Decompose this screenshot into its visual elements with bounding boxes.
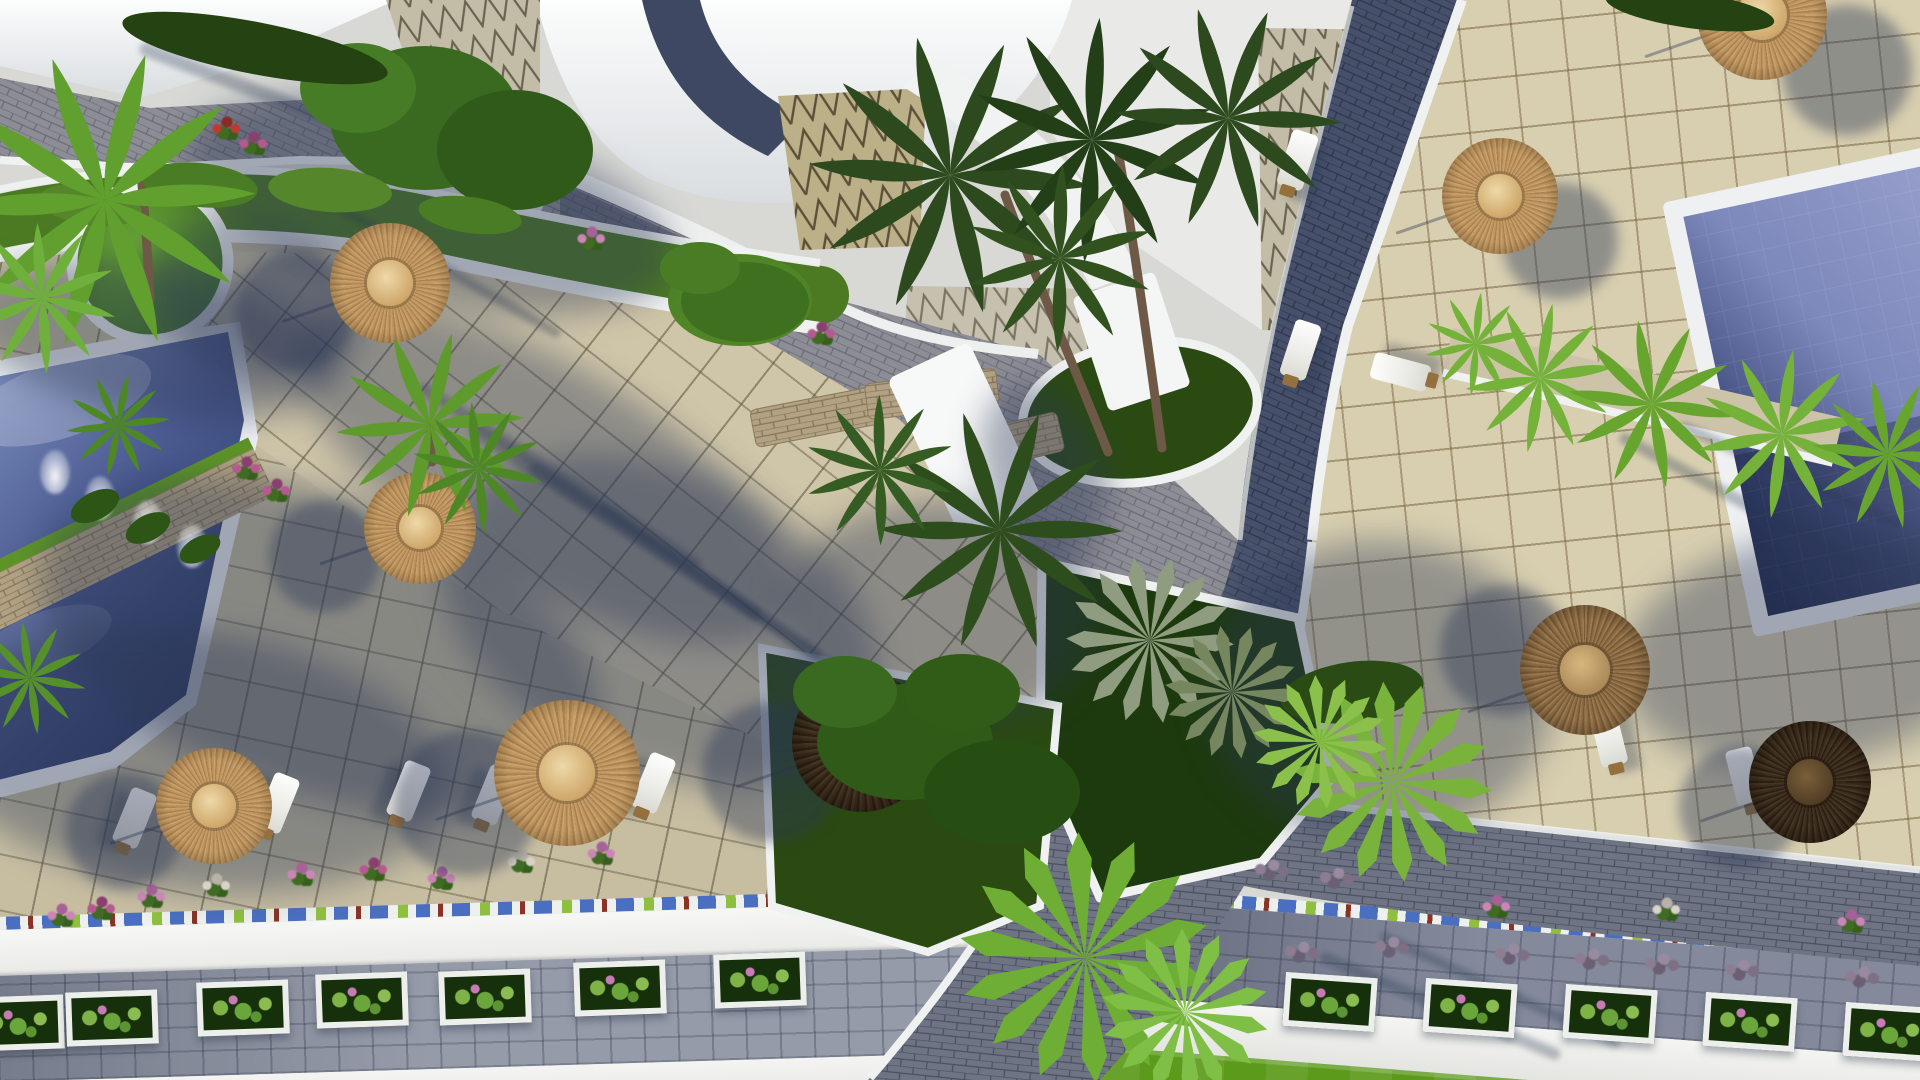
white-ribbon-wall bbox=[902, 58, 1138, 290]
bush bbox=[121, 506, 176, 551]
feather-palm bbox=[1553, 306, 1751, 502]
flower-tuft bbox=[1830, 903, 1870, 933]
shaded-path bbox=[1238, 0, 1462, 540]
fan-palm bbox=[1234, 656, 1406, 828]
navy-curved-band bbox=[642, 0, 806, 156]
triangle-mosaic-patch bbox=[902, 286, 1160, 366]
white-pergola-slab bbox=[1072, 271, 1191, 412]
parasol-shadow bbox=[1782, 5, 1912, 135]
flower-tuft bbox=[1645, 891, 1685, 921]
feather-palm bbox=[752, 0, 1147, 373]
flower-tuft bbox=[420, 860, 460, 890]
aerial-resort-render: Bird's-eye 3D rendering of a resort comp… bbox=[0, 0, 1920, 1080]
dry-scrub-tuft bbox=[1311, 862, 1359, 890]
bush bbox=[437, 90, 593, 210]
palm-trunk-shadow bbox=[138, 40, 353, 133]
soft-shadow bbox=[248, 240, 843, 711]
flower-tuft bbox=[130, 878, 170, 908]
straw-parasol bbox=[364, 472, 476, 584]
straw-parasol bbox=[330, 223, 450, 343]
soft-shadow bbox=[1205, 540, 1555, 840]
soft-shadow bbox=[1603, 504, 1920, 796]
parasol-canopy bbox=[494, 700, 640, 846]
flower-tuft bbox=[232, 125, 272, 155]
parasol-cap bbox=[1478, 174, 1522, 218]
fountain-splash bbox=[40, 450, 70, 494]
pool-water bbox=[0, 332, 244, 782]
palm-island bbox=[1013, 326, 1266, 497]
fan-palm bbox=[1266, 656, 1518, 908]
palm-trunk-shadow bbox=[298, 181, 563, 340]
poolside-pebble-planter bbox=[1442, 328, 1843, 467]
sun-lounger bbox=[254, 771, 301, 835]
soft-shadow bbox=[0, 595, 466, 925]
bush bbox=[681, 262, 809, 342]
palm-trunk bbox=[1118, 150, 1162, 448]
triangle-mosaic-patch bbox=[386, 0, 540, 118]
curved-grass-band bbox=[0, 202, 820, 295]
parasol-canopy bbox=[1697, 0, 1827, 80]
bush bbox=[924, 740, 1080, 844]
bush bbox=[36, 178, 145, 232]
feather-palm bbox=[0, 193, 146, 402]
straw-parasol bbox=[1442, 138, 1558, 254]
parasol-cap bbox=[192, 784, 236, 828]
parasol-cap bbox=[1787, 759, 1833, 805]
pool-water bbox=[1683, 162, 1920, 616]
sun-lounger bbox=[630, 751, 677, 815]
parasol-pole-shadow bbox=[109, 806, 214, 845]
parasol-pole-shadow bbox=[1700, 782, 1811, 823]
sun-lounger bbox=[1724, 746, 1764, 809]
soft-shadow bbox=[780, 500, 1100, 730]
bush bbox=[793, 656, 897, 728]
feather-palm bbox=[0, 617, 90, 739]
central-building bbox=[386, 0, 1396, 366]
parasol-pole-shadow bbox=[1395, 196, 1500, 235]
fan-palm-island bbox=[1040, 562, 1332, 898]
parasol-pole-shadow bbox=[736, 742, 863, 788]
palm-trunk-shadow bbox=[1617, 431, 1863, 572]
feather-palm bbox=[852, 381, 1147, 679]
bush bbox=[904, 654, 1020, 730]
fountain-splash bbox=[177, 524, 207, 568]
palm-trunk-shadow bbox=[466, 421, 764, 623]
bush bbox=[1603, 0, 1776, 40]
pool-coping bbox=[0, 322, 258, 800]
palm-trunk bbox=[430, 428, 432, 462]
bush bbox=[1277, 652, 1428, 731]
bush bbox=[300, 43, 416, 133]
circular-palm-planter bbox=[76, 188, 224, 336]
soft-shadow bbox=[958, 365, 1132, 575]
flower-tuft bbox=[280, 856, 320, 886]
palm-trunks bbox=[142, 150, 1162, 462]
feather-palm bbox=[1670, 322, 1894, 547]
parasol-pole-shadow bbox=[435, 773, 567, 821]
straw-parasol bbox=[1520, 605, 1650, 735]
bush bbox=[660, 242, 740, 294]
parasol-cap bbox=[399, 507, 442, 550]
parasol-shadow bbox=[269, 500, 381, 612]
bush bbox=[175, 528, 225, 569]
dry-scrub-tuft bbox=[1246, 854, 1294, 882]
bottom-left-walkway-strip bbox=[0, 887, 999, 1080]
parasol-cap bbox=[367, 260, 413, 306]
sun-lounger bbox=[1279, 318, 1323, 382]
flower-tuft bbox=[255, 472, 295, 502]
parasol-pole-shadow bbox=[319, 528, 421, 565]
bush bbox=[65, 482, 124, 531]
palm-trunk bbox=[1005, 195, 1108, 452]
pool-planter-bridge bbox=[0, 438, 276, 640]
feather-palm bbox=[393, 384, 562, 552]
landscaping bbox=[0, 170, 1332, 952]
parasol-pole-shadow bbox=[282, 283, 391, 323]
bush bbox=[140, 157, 260, 213]
parasol-shadow bbox=[1440, 585, 1570, 715]
flower-tuft bbox=[352, 851, 392, 881]
flower-tuft bbox=[580, 835, 620, 865]
bush bbox=[330, 46, 520, 190]
parasol-shadow bbox=[66, 773, 182, 889]
flower-tuft bbox=[195, 867, 235, 897]
palm-trunk bbox=[142, 185, 150, 300]
bushes-hedges bbox=[36, 0, 1777, 844]
parasol-shadow bbox=[235, 251, 355, 371]
left-swimming-pool bbox=[0, 322, 276, 800]
upper-gray-path bbox=[0, 78, 540, 178]
straw-parasol bbox=[792, 672, 932, 812]
triangle-mosaic-patch bbox=[778, 88, 926, 250]
right-swimming-pool bbox=[1442, 141, 1920, 638]
fan-palm bbox=[1065, 555, 1236, 726]
feather-palm bbox=[1416, 285, 1535, 403]
pool-coping bbox=[1662, 141, 1920, 638]
fountain-splash bbox=[85, 476, 115, 520]
soft-shadow bbox=[0, 233, 350, 447]
parasol-canopy bbox=[156, 748, 272, 864]
feather-palm bbox=[775, 365, 984, 575]
palm-trunk-shadow bbox=[527, 461, 824, 661]
sun-lounger bbox=[470, 763, 517, 827]
feather-palm bbox=[938, 137, 1182, 379]
bush bbox=[817, 684, 993, 800]
bush bbox=[118, 0, 393, 99]
parasol-shadow bbox=[702, 702, 842, 842]
grass-pocket bbox=[668, 254, 812, 346]
bottom-right-walkway-strip bbox=[1095, 886, 1920, 1080]
parasol-shadow bbox=[1502, 183, 1618, 299]
palm-trunk-shadow bbox=[417, 381, 703, 571]
flower-tuft bbox=[205, 110, 245, 140]
parasol-canopy bbox=[364, 472, 476, 584]
sun-lounger bbox=[1276, 128, 1320, 192]
top-left-building-roof bbox=[0, 0, 540, 182]
parasol-shadow bbox=[394, 730, 540, 876]
straw-parasol bbox=[494, 700, 640, 846]
straw-parasol bbox=[1749, 721, 1871, 843]
fountain-splash bbox=[133, 500, 163, 544]
feather-palm bbox=[960, 6, 1224, 274]
parasol-cap bbox=[1737, 0, 1786, 40]
soft-shadow bbox=[389, 389, 931, 850]
parasol-canopy bbox=[1749, 721, 1871, 843]
parasol-shadow bbox=[1679, 746, 1801, 868]
flower-tuft bbox=[500, 843, 540, 873]
soft-shadow bbox=[164, 52, 695, 357]
feather-palm bbox=[47, 355, 189, 496]
straw-parasol bbox=[1697, 0, 1827, 80]
palm-trunk-shadow bbox=[1678, 420, 1902, 529]
bush bbox=[416, 190, 524, 240]
feather-palm bbox=[1788, 353, 1920, 554]
feather-palm bbox=[0, 52, 255, 348]
palm-trunk-shadow bbox=[597, 501, 863, 689]
parasol-canopy bbox=[792, 672, 932, 812]
flower-tuft bbox=[800, 315, 840, 345]
parasol-cap bbox=[1560, 645, 1609, 694]
straw-parasol bbox=[156, 748, 272, 864]
triangle-mosaic-patch bbox=[1258, 28, 1396, 332]
sunlit-path bbox=[540, 170, 1238, 650]
white-pergola-slab bbox=[887, 341, 1043, 539]
flower-tuft bbox=[66, 183, 106, 213]
sun-lounger bbox=[385, 759, 432, 823]
parasol-cap bbox=[539, 745, 594, 800]
feather-palm bbox=[315, 309, 544, 541]
soft-shadow bbox=[124, 187, 385, 413]
parasol-cap bbox=[835, 715, 888, 768]
feather-palm bbox=[1074, 0, 1382, 271]
flower-tuft bbox=[1475, 888, 1515, 918]
parasol-pole-shadow bbox=[1468, 670, 1586, 713]
bush bbox=[267, 164, 394, 217]
feather-palm bbox=[1435, 273, 1646, 483]
parasol-canopy bbox=[330, 223, 450, 343]
soft-shadow bbox=[0, 413, 642, 878]
stone-planter-walls bbox=[750, 368, 1065, 476]
fan-palm bbox=[1138, 598, 1326, 786]
parasol-pole-shadow bbox=[1645, 15, 1763, 58]
sun-lounger bbox=[111, 786, 158, 850]
sun-lounger bbox=[1588, 706, 1628, 769]
sun-lounger bbox=[1369, 351, 1432, 392]
parasol-canopy bbox=[1520, 605, 1650, 735]
white-curved-roof bbox=[536, 0, 1072, 203]
flower-tuft bbox=[570, 220, 610, 250]
white-ribbon-curb bbox=[545, 166, 832, 302]
white-slabs bbox=[887, 271, 1191, 539]
flower-tuft bbox=[225, 450, 265, 480]
parasol-canopy bbox=[1442, 138, 1558, 254]
